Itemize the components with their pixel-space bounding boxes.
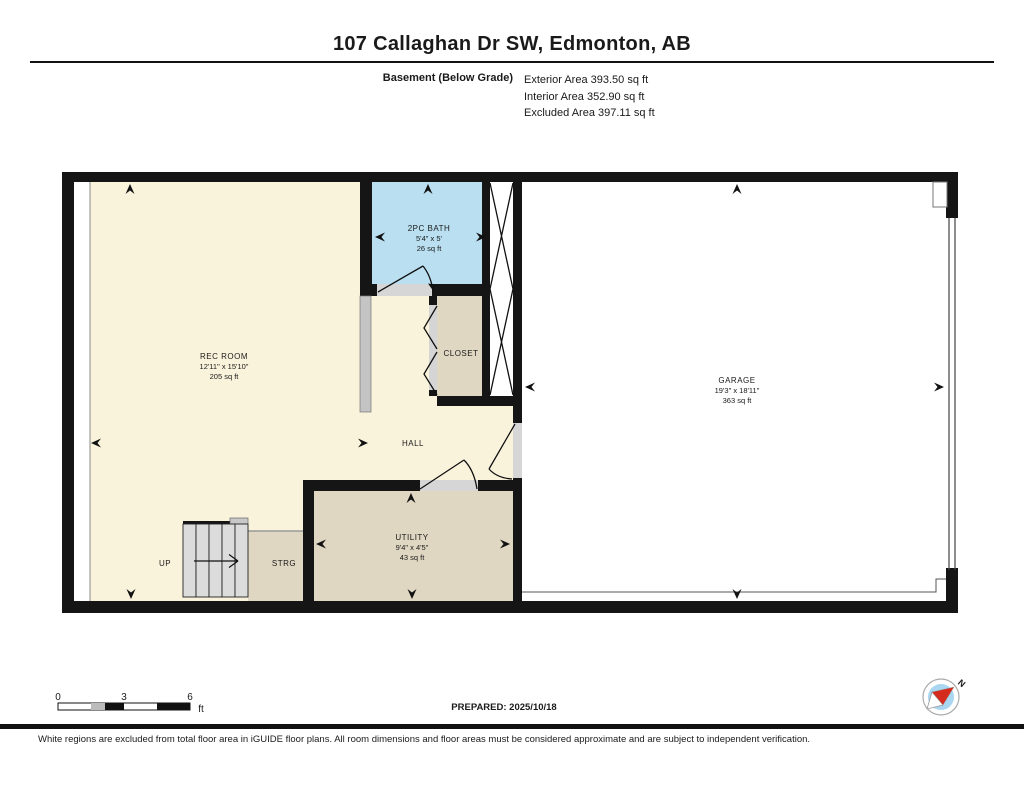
bath-dims: 5'4" x 5' xyxy=(416,234,443,243)
garage-dims: 19'3" x 18'11" xyxy=(715,386,760,395)
rec-room-label: REC ROOM xyxy=(200,352,248,361)
scale-tick-3: 3 xyxy=(121,692,127,703)
stairs xyxy=(183,524,248,597)
garage-door-jamb xyxy=(933,182,947,207)
hall-label: HALL xyxy=(402,439,424,448)
up-label: UP xyxy=(159,559,171,568)
bath-area: 26 sq ft xyxy=(417,244,443,253)
room-utility: UTILITY 9'4" x 4'5" 43 sq ft xyxy=(395,533,428,562)
utility-label: UTILITY xyxy=(395,533,428,542)
strg-label: STRG xyxy=(272,559,296,568)
closet-floor xyxy=(437,296,482,396)
utility-door-threshold xyxy=(420,480,478,491)
bath-floor xyxy=(372,182,482,284)
utility-dims: 9'4" x 4'5" xyxy=(396,543,429,552)
bath-label: 2PC BATH xyxy=(408,224,451,233)
half-wall xyxy=(360,296,371,412)
garage-door-panel xyxy=(513,423,522,478)
scale-tick-0: 0 xyxy=(55,692,61,703)
garage-door-opening xyxy=(946,218,958,568)
excluded-left-strip xyxy=(74,182,90,601)
rec-room-area: 205 sq ft xyxy=(210,372,240,381)
garage-label: GARAGE xyxy=(718,376,755,385)
compass-north-label: N xyxy=(956,677,967,689)
scale-unit: ft xyxy=(198,704,204,715)
prepared-date: PREPARED: 2025/10/18 xyxy=(451,702,556,713)
utility-area: 43 sq ft xyxy=(400,553,426,562)
scale-tick-6: 6 xyxy=(187,692,193,703)
rec-room-dims: 12'11" x 15'10" xyxy=(200,362,249,371)
closet-label: CLOSET xyxy=(443,349,478,358)
footer-disclaimer: White regions are excluded from total fl… xyxy=(38,734,810,745)
compass-icon: N xyxy=(923,677,967,715)
bath-door-threshold xyxy=(377,284,432,296)
stairwell-strip xyxy=(490,182,513,396)
garage-area: 363 sq ft xyxy=(723,396,753,405)
footer-divider xyxy=(0,724,1024,729)
scale-bar: 0 3 6 ft xyxy=(55,692,204,715)
floor-plan: REC ROOM 12'11" x 15'10" 205 sq ft 2PC B… xyxy=(0,0,1024,791)
